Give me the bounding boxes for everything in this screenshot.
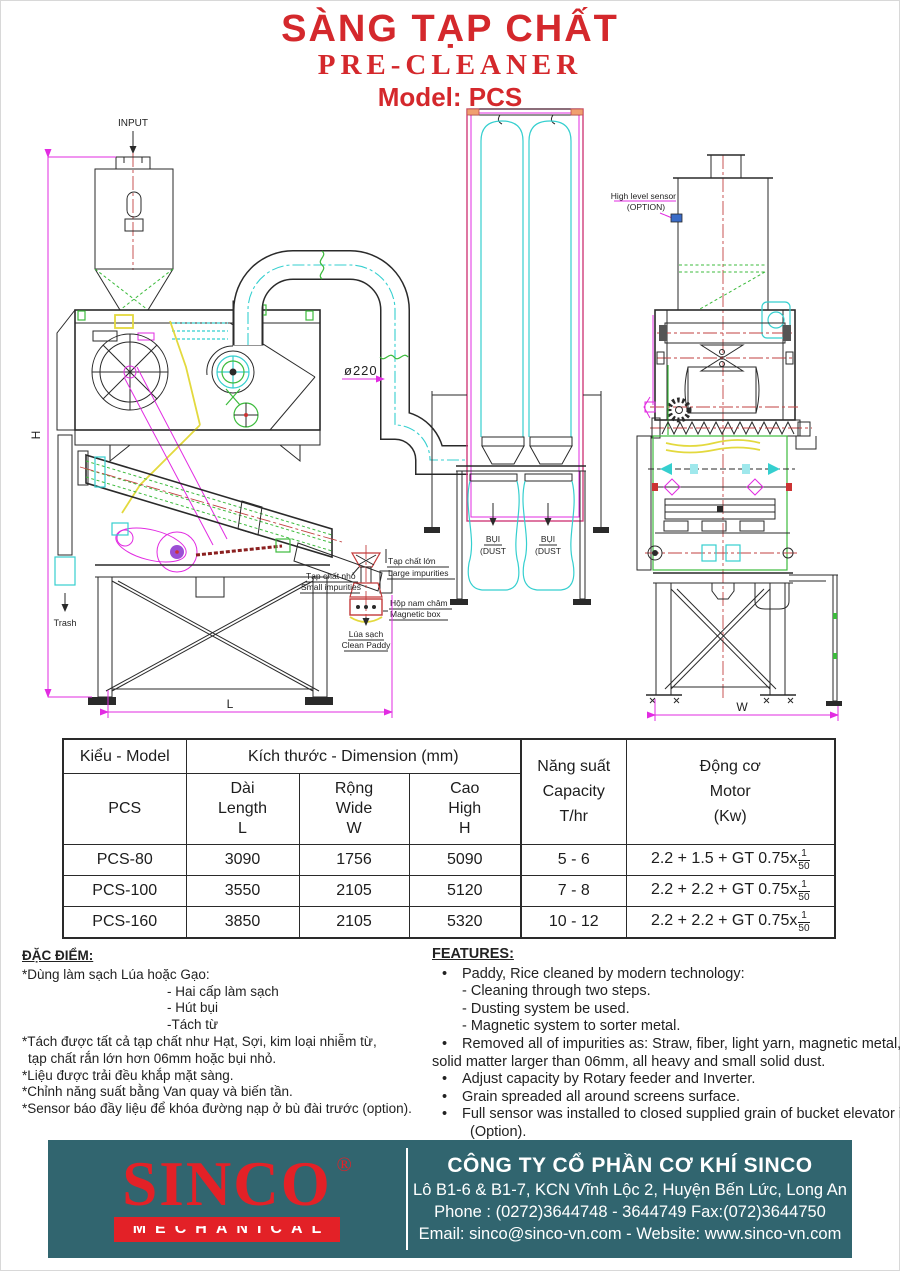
col-wide: Rộng Wide W xyxy=(299,774,409,845)
dust-label-vi: BỤI xyxy=(486,534,500,544)
company-address: Lô B1-6 & B1-7, KCN Vĩnh Lộc 2, Huyện Bế… xyxy=(408,1181,852,1200)
feature-line: - Cleaning through two steps. xyxy=(432,983,892,1001)
dimension-h-label: H xyxy=(29,431,43,440)
features-en-heading: FEATURES: xyxy=(432,946,892,964)
col-length: Dài Length L xyxy=(186,774,299,845)
col-model-sub: PCS xyxy=(63,774,186,845)
cell-capacity: 5 - 6 xyxy=(521,845,626,876)
feature-line: •Adjust capacity by Rotary feeder and In… xyxy=(432,1071,892,1089)
specification-table: Kiểu - Model Kích thước - Dimension (mm)… xyxy=(62,738,836,939)
title-block: SÀNG TẠP CHẤT PRE-CLEANER Model: PCS xyxy=(0,8,900,113)
sensor-label-line1: High level sensor xyxy=(611,191,676,201)
small-impurities-label-en: Small impurities xyxy=(301,582,361,592)
cell-motor: 2.2 + 1.5 + GT 0.75x150 xyxy=(626,845,835,876)
cell-model: PCS-80 xyxy=(63,845,186,876)
sinco-logo: SINCO ® MECHANICAL xyxy=(48,1140,406,1258)
company-email-website: Email: sinco@sinco-vn.com - Website: www… xyxy=(408,1225,852,1244)
cell-model: PCS-160 xyxy=(63,907,186,939)
large-impurities-label-en: Large impurities xyxy=(388,568,448,578)
col-capacity: Năng suất Capacity T/hr xyxy=(521,739,626,845)
feature-line: -Tách từ xyxy=(167,1017,424,1034)
company-info: CÔNG TY CỔ PHẦN CƠ KHÍ SINCO Lô B1-6 & B… xyxy=(408,1140,852,1258)
feature-line: •Paddy, Rice cleaned by modern technolog… xyxy=(432,966,892,984)
sinco-logo-text: SINCO xyxy=(118,1149,336,1226)
feature-line: *Chỉnh năng suất bằng Van quay và biến t… xyxy=(22,1084,424,1101)
company-phone: Phone : (0272)3644748 - 3644749 Fax:(072… xyxy=(408,1203,852,1222)
feature-line: *Sensor báo đầy liệu để khóa đường nạp ở… xyxy=(22,1101,424,1118)
table-row: PCS-160 3850 2105 5320 10 - 12 2.2 + 2.2… xyxy=(63,907,835,939)
page-title-vi: SÀNG TẠP CHẤT xyxy=(0,8,900,51)
feature-line: *Liệu được trải đều khắp mặt sàng. xyxy=(22,1068,424,1085)
high-level-sensor-icon xyxy=(671,214,682,222)
feature-line: tạp chất rắn lớn hơn 06mm hoặc bụi nhỏ. xyxy=(28,1051,424,1068)
cell-high: 5090 xyxy=(409,845,521,876)
cell-high: 5320 xyxy=(409,907,521,939)
datasheet-page: SÀNG TẠP CHẤT PRE-CLEANER Model: PCS INP… xyxy=(0,0,900,1271)
clean-paddy-label-en: Clean Paddy xyxy=(342,640,391,650)
dimension-l-label: L xyxy=(227,697,234,711)
technical-drawing: INPUT xyxy=(0,105,900,738)
cell-wide: 1756 xyxy=(299,845,409,876)
cell-motor: 2.2 + 2.2 + GT 0.75x150 xyxy=(626,907,835,939)
large-impurities-label-vi: Tạp chất lớn xyxy=(388,556,436,566)
table-row: PCS-100 3550 2105 5120 7 - 8 2.2 + 2.2 +… xyxy=(63,876,835,907)
feature-line: •Removed all of impurities as: Straw, fi… xyxy=(432,1036,892,1054)
col-high: Cao High H xyxy=(409,774,521,845)
magnetic-box-label-vi: Hộp nam châm xyxy=(390,598,448,608)
cell-length: 3550 xyxy=(186,876,299,907)
feature-line: - Magnetic system to sorter metal. xyxy=(432,1018,892,1036)
cell-model: PCS-100 xyxy=(63,876,186,907)
feature-line: - Hút bụi xyxy=(167,1000,424,1017)
cell-motor: 2.2 + 2.2 + GT 0.75x150 xyxy=(626,876,835,907)
features-english: FEATURES: •Paddy, Rice cleaned by modern… xyxy=(432,946,892,1142)
company-name: CÔNG TY CỔ PHẦN CƠ KHÍ SINCO xyxy=(408,1154,852,1178)
clean-paddy-label-vi: Lúa sạch xyxy=(349,629,384,639)
dust-label-vi-2: BỤI xyxy=(541,534,555,544)
feature-line: *Dùng làm sạch Lúa hoặc Gạo: xyxy=(22,967,424,984)
table-header-row-1: Kiểu - Model Kích thước - Dimension (mm)… xyxy=(63,739,835,774)
feature-line: solid matter larger than 06mm, all heavy… xyxy=(432,1054,892,1072)
feature-line: (Option). xyxy=(432,1124,892,1142)
cell-wide: 2105 xyxy=(299,876,409,907)
magnetic-box-label-en: Magnetic box xyxy=(390,609,441,619)
col-model-group: Kiểu - Model xyxy=(63,739,186,774)
col-motor: Động cơ Motor (Kw) xyxy=(626,739,835,845)
col-dimension-group: Kích thước - Dimension (mm) xyxy=(186,739,521,774)
sensor-label-line2: (OPTION) xyxy=(627,202,665,212)
right-view-front-elevation: High level sensor (OPTION) xyxy=(611,155,842,721)
feature-line: - Hai cấp làm sạch xyxy=(167,984,424,1001)
feature-line: •Grain spreaded all around screens surfa… xyxy=(432,1089,892,1107)
feature-line: - Dusting system be used. xyxy=(432,1001,892,1019)
dimension-w-label: W xyxy=(736,700,748,714)
registered-trademark-icon: ® xyxy=(337,1154,352,1177)
features-vietnamese: ĐẶC ĐIỂM: *Dùng làm sạch Lúa hoặc Gạo: -… xyxy=(22,948,424,1118)
dust-label-en-2: (DUST xyxy=(535,546,561,556)
table-row: PCS-80 3090 1756 5090 5 - 6 2.2 + 1.5 + … xyxy=(63,845,835,876)
page-title-en: PRE-CLEANER xyxy=(0,49,900,82)
small-impurities-label-vi: Tạp chất nhỏ xyxy=(306,571,356,581)
cell-capacity: 7 - 8 xyxy=(521,876,626,907)
input-label: INPUT xyxy=(118,118,148,129)
cell-length: 3090 xyxy=(186,845,299,876)
footer-company-bar: SINCO ® MECHANICAL CÔNG TY CỔ PHẦN CƠ KH… xyxy=(48,1140,852,1258)
feature-line: *Tách được tất cả tạp chất như Hạt, Sợi,… xyxy=(22,1034,424,1051)
cell-length: 3850 xyxy=(186,907,299,939)
trash-label: Trash xyxy=(54,618,77,628)
cell-high: 5120 xyxy=(409,876,521,907)
duct-diameter-label: ø220 xyxy=(344,363,378,378)
features-vi-heading: ĐẶC ĐIỂM: xyxy=(22,948,424,965)
cell-wide: 2105 xyxy=(299,907,409,939)
cell-capacity: 10 - 12 xyxy=(521,907,626,939)
dust-label-en: (DUST xyxy=(480,546,506,556)
feature-line: •Full sensor was installed to closed sup… xyxy=(432,1106,892,1124)
